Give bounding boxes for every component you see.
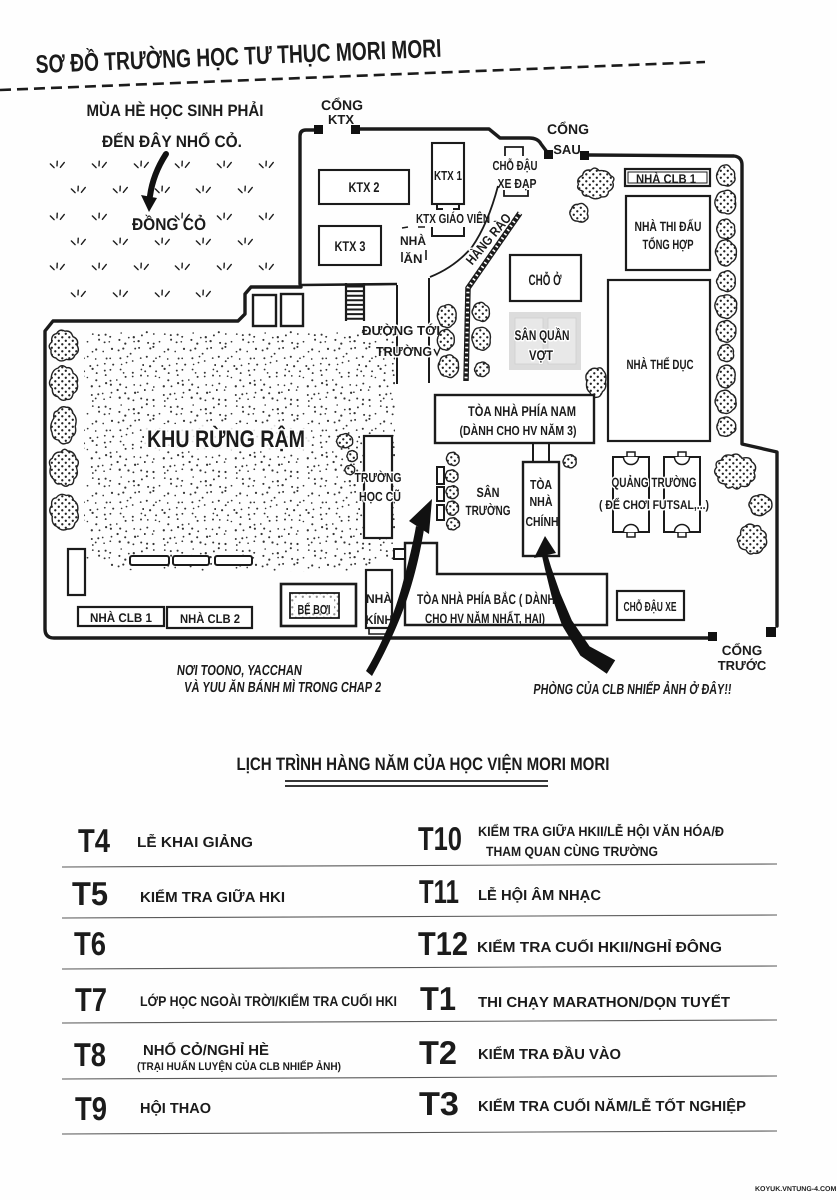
svg-text:KTX 2: KTX 2: [349, 179, 380, 195]
svg-text:SÂN: SÂN: [477, 484, 500, 500]
svg-text:CỔNG: CỔNG: [321, 97, 363, 113]
svg-text:T4: T4: [78, 822, 111, 859]
svg-text:TÒA NHÀ PHÍA NAM: TÒA NHÀ PHÍA NAM: [468, 403, 576, 419]
svg-text:KTX 1: KTX 1: [434, 168, 462, 183]
svg-text:TÒA: TÒA: [530, 477, 552, 492]
svg-text:NHÀ THỂ DỤC: NHÀ THỂ DỤC: [627, 356, 694, 372]
svg-text:VỢT: VỢT: [529, 347, 553, 363]
svg-text:NHÀ: NHÀ: [366, 591, 392, 606]
svg-text:HỘI THAO: HỘI THAO: [140, 1100, 211, 1117]
svg-text:NHÀ: NHÀ: [530, 494, 553, 509]
svg-text:KIỂM TRA CUỐI HKII/NGHỈ ĐÔNG: KIỂM TRA CUỐI HKII/NGHỈ ĐÔNG: [477, 939, 722, 956]
svg-text:LỊCH TRÌNH HÀNG NĂM CỦA HỌC VI: LỊCH TRÌNH HÀNG NĂM CỦA HỌC VIỆN MORI MO…: [237, 753, 610, 774]
svg-text:T7: T7: [75, 981, 107, 1018]
svg-text:KTX GIÁO VIÊN: KTX GIÁO VIÊN: [416, 211, 490, 226]
svg-text:LỄ KHAI GIẢNG: LỄ KHAI GIẢNG: [137, 834, 253, 851]
svg-text:BỂ BƠI: BỂ BƠI: [298, 602, 331, 617]
svg-text:LỄ HỘI ÂM NHẠC: LỄ HỘI ÂM NHẠC: [478, 887, 602, 904]
svg-text:CỔNG: CỔNG: [547, 121, 589, 137]
svg-text:ĐỒNG CỎ: ĐỒNG CỎ: [132, 214, 206, 234]
svg-text:KIỂM TRA GIỮA HKII/LỄ HỘI VĂN: KIỂM TRA GIỮA HKII/LỄ HỘI VĂN HÓA/Đ: [478, 823, 724, 839]
svg-text:TÒA NHÀ PHÍA BẮC ( DÀNH: TÒA NHÀ PHÍA BẮC ( DÀNH: [417, 591, 555, 607]
svg-text:T8: T8: [74, 1036, 106, 1073]
svg-text:TRƯỜNG: TRƯỜNG: [466, 503, 511, 518]
svg-text:TỔNG HỢP: TỔNG HỢP: [643, 236, 694, 252]
svg-text:VÀ YUU ĂN BÁNH MÌ TRONG CHAP 2: VÀ YUU ĂN BÁNH MÌ TRONG CHAP 2: [183, 679, 382, 696]
svg-text:T5: T5: [72, 875, 108, 912]
svg-text:T2: T2: [419, 1034, 457, 1071]
svg-text:NHÀ CLB 1: NHÀ CLB 1: [90, 610, 152, 625]
svg-text:( ĐỂ CHƠI FUTSAL,...): ( ĐỂ CHƠI FUTSAL,...): [599, 497, 709, 512]
svg-text:T11: T11: [419, 873, 459, 910]
svg-text:KTX: KTX: [328, 112, 354, 127]
svg-text:T9: T9: [75, 1090, 107, 1127]
svg-text:NHÀ THI ĐẤU: NHÀ THI ĐẤU: [635, 218, 702, 234]
svg-text:T10: T10: [418, 820, 462, 857]
svg-text:KTX 3: KTX 3: [335, 238, 366, 254]
svg-text:KÍNH: KÍNH: [366, 612, 393, 627]
svg-text:KHU RỪNG RẬM: KHU RỪNG RẬM: [147, 425, 305, 453]
svg-text:T12: T12: [418, 925, 468, 962]
svg-text:CHO HV NĂM NHẤT, HAI): CHO HV NĂM NHẤT, HAI): [425, 610, 545, 626]
svg-text:QUẢNG TRƯỜNG: QUẢNG TRƯỜNG: [612, 474, 697, 490]
svg-text:T6: T6: [74, 925, 106, 962]
svg-text:TRƯỜNG: TRƯỜNG: [355, 470, 402, 485]
svg-text:(TRẠI HUẤN LUYỆN CỦA CLB NHIẾP: (TRẠI HUẤN LUYỆN CỦA CLB NHIẾP ẢNH): [137, 1060, 341, 1073]
svg-text:MÙA HÈ HỌC SINH PHẢI: MÙA HÈ HỌC SINH PHẢI: [87, 101, 264, 120]
svg-text:XE ĐẠP: XE ĐẠP: [498, 176, 537, 191]
svg-text:T3: T3: [419, 1085, 459, 1122]
svg-text:NƠI TOONO, YACCHAN: NƠI TOONO, YACCHAN: [176, 663, 303, 679]
svg-text:CHÍNH: CHÍNH: [526, 514, 559, 529]
svg-text:THAM QUAN CÙNG TRƯỜNG: THAM QUAN CÙNG TRƯỜNG: [486, 844, 658, 859]
svg-text:NHÀ: NHÀ: [400, 233, 426, 248]
svg-text:KOYUK.VNTUNG-4.COM: KOYUK.VNTUNG-4.COM: [755, 1186, 836, 1193]
svg-text:PHÒNG CỦA CLB NHIẾP ẢNH Ở ĐÂY!: PHÒNG CỦA CLB NHIẾP ẢNH Ở ĐÂY!!: [533, 681, 733, 698]
svg-text:CHỖ Ở: CHỖ Ở: [529, 271, 562, 289]
svg-text:CHỖ ĐẬU: CHỖ ĐẬU: [493, 158, 538, 173]
svg-text:NHỔ CỎ/NGHỈ HÈ: NHỔ CỎ/NGHỈ HÈ: [143, 1042, 269, 1059]
svg-text:(DÀNH CHO HV NĂM 3): (DÀNH CHO HV NĂM 3): [460, 423, 577, 438]
svg-text:SÂN QUẦN: SÂN QUẦN: [515, 327, 570, 343]
svg-text:SAU: SAU: [553, 142, 580, 157]
svg-text:KIỂM TRA GIỮA HKI: KIỂM TRA GIỮA HKI: [140, 889, 285, 906]
svg-text:NHÀ CLB 2: NHÀ CLB 2: [180, 611, 240, 626]
svg-text:KIỂM TRA CUỐI NĂM/LỄ TỐT NGHIỆ: KIỂM TRA CUỐI NĂM/LỄ TỐT NGHIỆP: [478, 1098, 746, 1115]
svg-text:LỚP HỌC NGOÀI TRỜI/KIỂM TRA CU: LỚP HỌC NGOÀI TRỜI/KIỂM TRA CUỐI HKI: [140, 993, 397, 1009]
svg-text:THI CHẠY MARATHON/DỌN TUYẾT: THI CHẠY MARATHON/DỌN TUYẾT: [478, 994, 730, 1011]
svg-text:CỔNG: CỔNG: [722, 642, 763, 658]
svg-text:HỌC CŨ: HỌC CŨ: [359, 489, 401, 504]
svg-text:CHỖ ĐẬU XE: CHỖ ĐẬU XE: [624, 599, 677, 614]
svg-text:KIỂM TRA ĐẦU VÀO: KIỂM TRA ĐẦU VÀO: [478, 1046, 621, 1063]
svg-text:ĐẾN ĐÂY NHỔ CỎ.: ĐẾN ĐÂY NHỔ CỎ.: [102, 132, 242, 151]
svg-text:T1: T1: [420, 980, 456, 1017]
svg-text:NHÀ CLB 1: NHÀ CLB 1: [636, 171, 696, 186]
svg-text:TRƯỚC: TRƯỚC: [718, 658, 767, 673]
svg-text:ĂN: ĂN: [404, 251, 423, 266]
